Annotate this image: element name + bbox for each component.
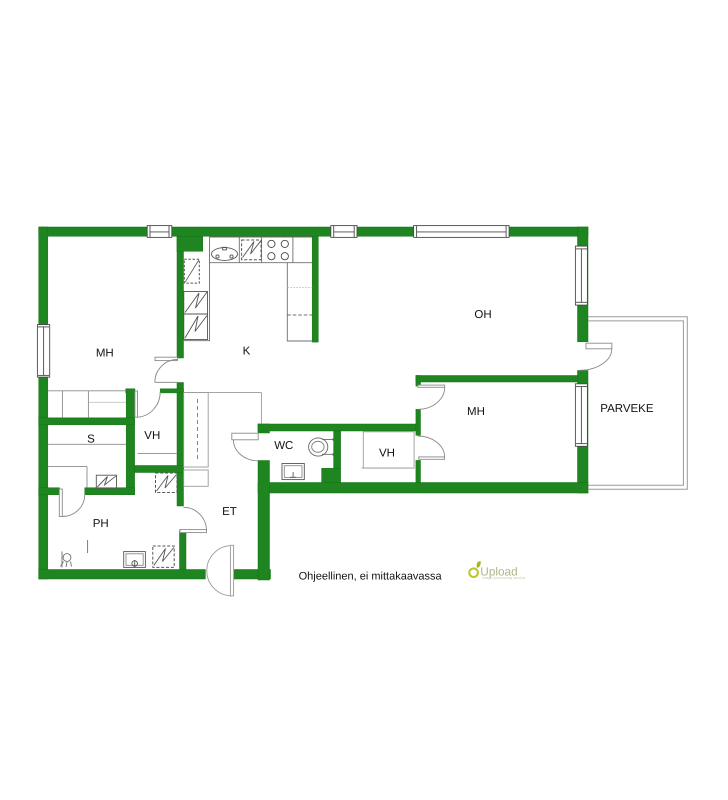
svg-text:VH: VH [144,430,160,442]
svg-text:MH: MH [96,348,114,360]
svg-text:K: K [243,345,251,357]
svg-text:PARVEKE: PARVEKE [600,403,654,415]
svg-text:MH: MH [467,406,485,418]
svg-text:image processing service: image processing service [482,576,525,580]
svg-text:VH: VH [379,448,395,460]
svg-text:Ohjeellinen, ei mittakaavassa: Ohjeellinen, ei mittakaavassa [299,571,443,583]
svg-text:PH: PH [93,518,109,530]
svg-text:S: S [87,433,95,445]
svg-text:WC: WC [274,440,293,452]
svg-text:ET: ET [222,506,237,518]
svg-text:OH: OH [474,309,491,321]
